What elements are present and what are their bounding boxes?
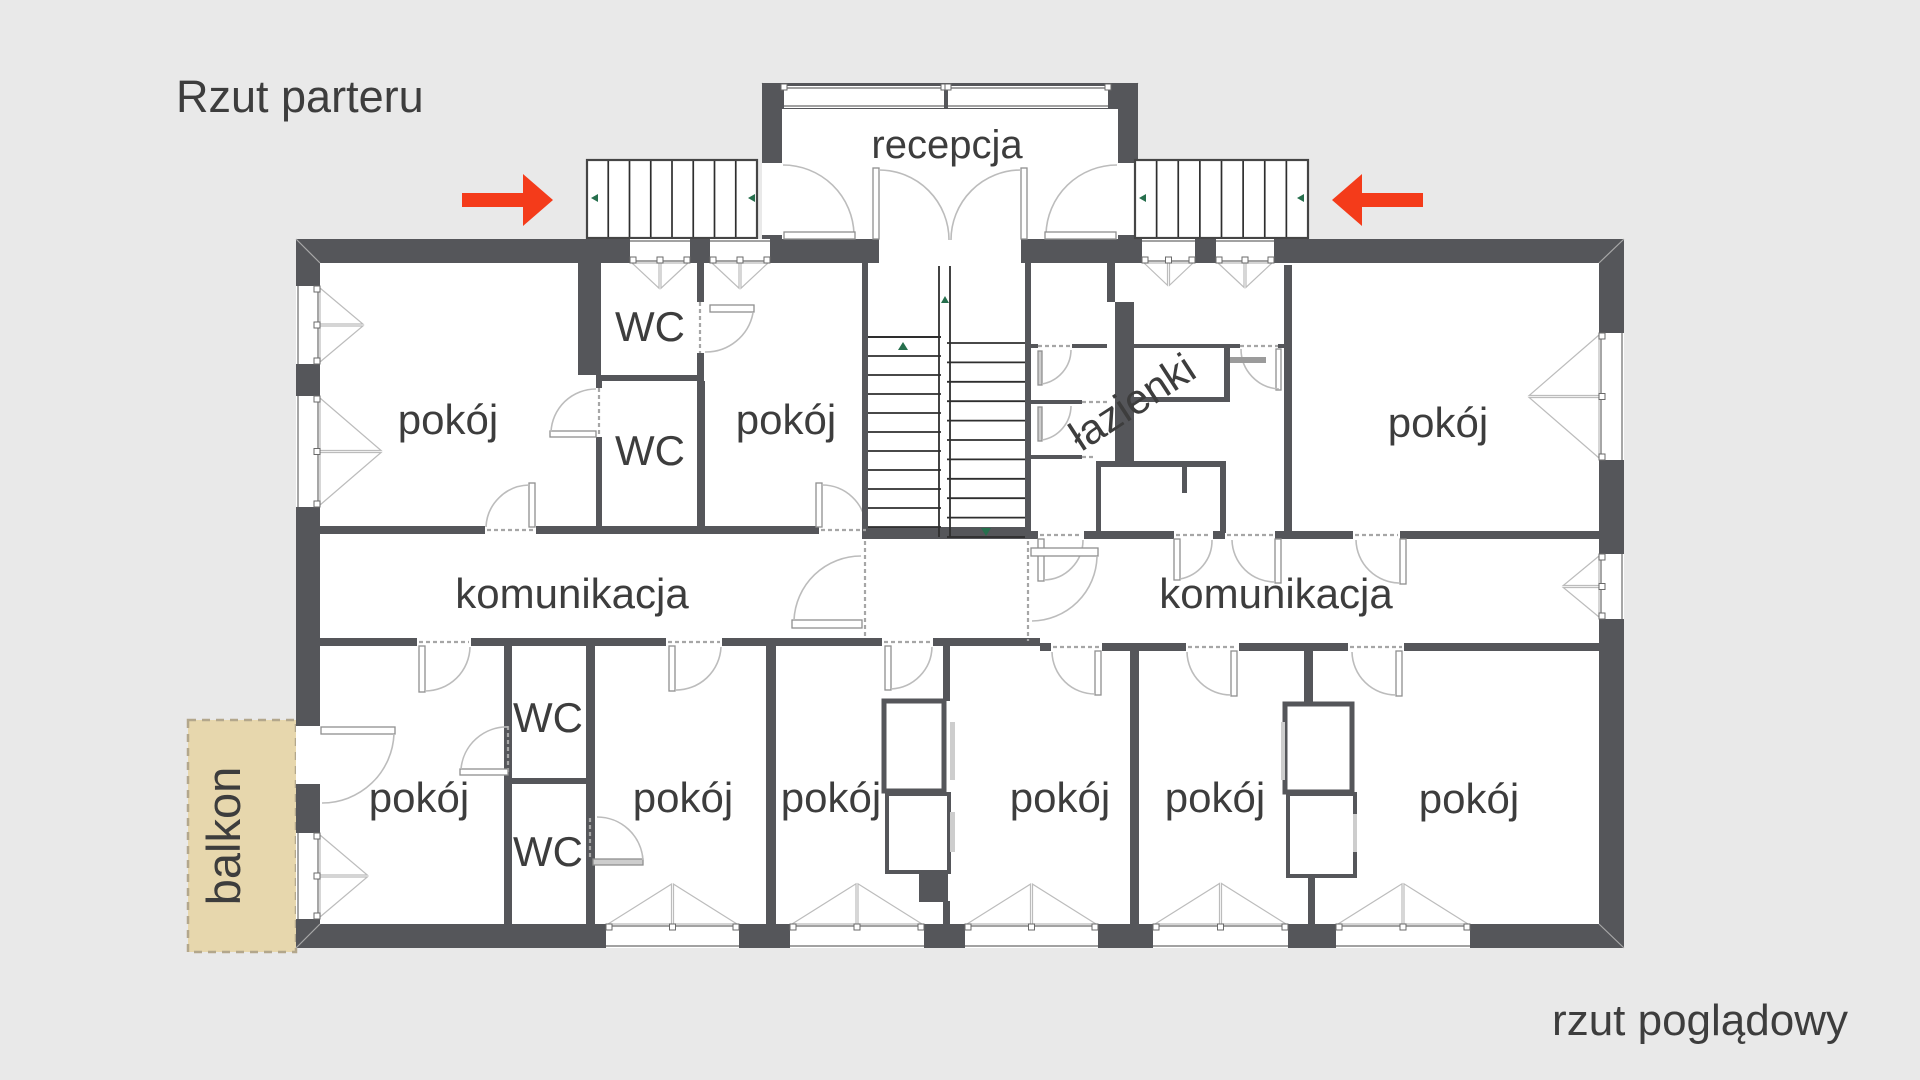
svg-text:komunikacja: komunikacja — [1159, 570, 1393, 617]
svg-text:WC: WC — [615, 427, 685, 474]
svg-text:WC: WC — [513, 694, 583, 741]
svg-text:rzut poglądowy: rzut poglądowy — [1552, 996, 1848, 1045]
svg-text:pokój: pokój — [369, 774, 469, 821]
svg-text:komunikacja: komunikacja — [455, 570, 689, 617]
svg-text:pokój: pokój — [1010, 774, 1110, 821]
svg-text:balkon: balkon — [197, 767, 250, 906]
svg-text:pokój: pokój — [398, 396, 498, 443]
svg-text:WC: WC — [513, 828, 583, 875]
svg-text:pokój: pokój — [781, 774, 881, 821]
svg-text:pokój: pokój — [1388, 399, 1488, 446]
svg-text:WC: WC — [615, 303, 685, 350]
svg-text:pokój: pokój — [1419, 775, 1519, 822]
svg-text:pokój: pokój — [1165, 774, 1265, 821]
svg-text:pokój: pokój — [736, 396, 836, 443]
svg-text:pokój: pokój — [633, 774, 733, 821]
svg-text:Rzut parteru: Rzut parteru — [176, 71, 424, 122]
svg-text:recepcja: recepcja — [871, 123, 1023, 167]
